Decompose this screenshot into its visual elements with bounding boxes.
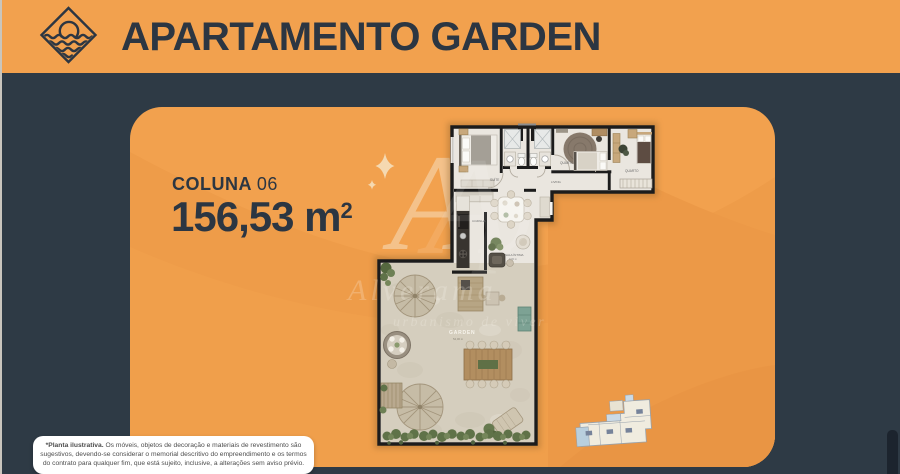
svg-text:54,00 m: 54,00 m bbox=[453, 337, 464, 341]
svg-text:LIVING: LIVING bbox=[551, 180, 562, 184]
svg-text:p: p bbox=[471, 152, 533, 274]
svg-text:QUARTO: QUARTO bbox=[560, 161, 574, 165]
svg-text:QUARTO: QUARTO bbox=[625, 169, 639, 173]
svg-text:GARDEN: GARDEN bbox=[449, 330, 475, 336]
svg-text:urbanismo de viver: urbanismo de viver bbox=[393, 315, 546, 330]
